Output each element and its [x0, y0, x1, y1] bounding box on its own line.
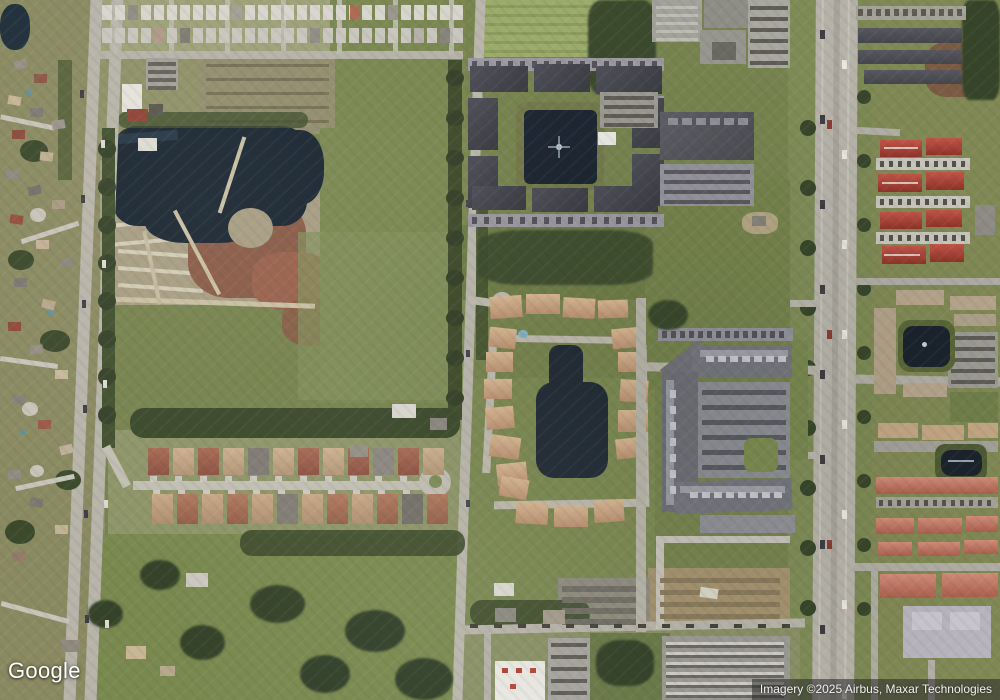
map-feature: [660, 578, 780, 583]
map-feature: [961, 161, 965, 167]
car: [820, 455, 825, 464]
townhouse: [554, 505, 588, 527]
apartment-building: [534, 64, 590, 92]
salmon-building: [878, 542, 912, 556]
trailer-row: [427, 28, 437, 43]
house: [126, 646, 146, 659]
trailer-row: [453, 28, 463, 43]
house-row: [273, 448, 294, 475]
map-feature: [429, 475, 442, 488]
map-feature: [350, 476, 357, 482]
map-feature: [614, 624, 622, 628]
map-feature: [670, 422, 676, 430]
map-feature: [800, 540, 816, 556]
clubhouse: [598, 132, 616, 145]
map-feature: [484, 217, 489, 224]
car: [820, 370, 825, 379]
map-feature: [686, 624, 694, 628]
house: [392, 404, 416, 418]
map-feature: [544, 217, 549, 224]
house: [543, 610, 565, 624]
map-feature: [446, 350, 464, 366]
map-feature: [656, 6, 698, 9]
house-row: [252, 494, 273, 524]
map-feature: [98, 330, 116, 348]
red-roof-building: [930, 244, 964, 262]
map-feature: [770, 331, 775, 338]
house: [8, 322, 21, 331]
map-feature: [857, 154, 871, 168]
house: [30, 344, 44, 354]
map-feature: [551, 691, 587, 695]
map-feature: [943, 161, 947, 167]
map-feature: [470, 624, 478, 628]
map-feature: [889, 235, 893, 241]
trailer-row: [271, 28, 281, 43]
map-feature: [698, 331, 703, 338]
map-feature: [916, 161, 920, 167]
trailer-row: [362, 5, 372, 20]
building: [874, 308, 896, 394]
map-feature: [969, 500, 973, 506]
map-feature: [604, 217, 609, 224]
map-feature: [889, 199, 893, 205]
map-feature: [446, 270, 464, 286]
trailer-row: [440, 5, 450, 20]
house-row: [298, 448, 319, 475]
map-feature: [562, 586, 636, 592]
house: [55, 525, 68, 534]
house-row: [177, 494, 198, 524]
map-feature: [648, 300, 688, 330]
map-feature: [880, 235, 884, 241]
house: [9, 214, 23, 225]
map-feature: [898, 235, 902, 241]
trailer-row: [349, 28, 359, 43]
map-feature: [446, 110, 464, 126]
trailer-row: [336, 5, 346, 20]
map-feature: [98, 254, 116, 272]
map-feature: [921, 9, 926, 16]
house: [160, 666, 175, 676]
trailer-row: [453, 5, 463, 20]
map-feature: [240, 530, 465, 556]
map-feature: [400, 476, 407, 482]
salmon-building: [876, 477, 998, 494]
house: [30, 108, 43, 117]
imagery-attribution: Imagery ©2025 Airbus, Maxar Technologies: [752, 679, 1000, 700]
map-feature: [750, 17, 788, 21]
townhouse: [485, 406, 515, 430]
map-feature: [696, 118, 706, 125]
map-feature: [472, 217, 477, 224]
house-row: [423, 448, 444, 475]
street-subdivision: [133, 481, 433, 490]
map-feature: [680, 331, 685, 338]
map-feature: [310, 28, 320, 43]
apartment-building: [472, 186, 526, 210]
map-feature: [707, 331, 712, 338]
map-feature: [30, 208, 46, 222]
map-feature: [950, 392, 998, 422]
pool: [26, 90, 32, 95]
map-feature: [5, 520, 35, 544]
map-feature: [175, 476, 182, 482]
car: [105, 620, 109, 628]
car: [820, 540, 825, 549]
map-feature: [200, 476, 207, 482]
house: [350, 445, 368, 457]
map-feature: [934, 161, 938, 167]
map-feature: [961, 199, 965, 205]
trailer-row: [323, 5, 333, 20]
red-roof-building: [926, 138, 962, 155]
map-feature: [484, 630, 491, 700]
map-feature: [750, 28, 788, 32]
trailer-row: [193, 28, 203, 43]
map-feature: [761, 331, 766, 338]
map-feature: [800, 120, 816, 136]
trailer-row: [297, 28, 307, 43]
map-feature: [957, 9, 962, 16]
map-feature: [857, 410, 871, 424]
map-feature: [758, 624, 766, 628]
map-feature: [961, 235, 965, 241]
house-row: [173, 448, 194, 475]
map-feature: [590, 624, 598, 628]
map-feature: [656, 14, 698, 17]
map-feature: [373, 448, 394, 475]
map-feature: [558, 136, 560, 158]
map-feature: [516, 668, 522, 673]
map-feature: [670, 390, 676, 398]
map-feature: [750, 492, 758, 498]
map-feature: [933, 500, 937, 506]
car: [81, 195, 85, 203]
map-feature: [734, 624, 742, 628]
map-feature: [939, 9, 944, 16]
road: [636, 298, 646, 632]
building: [149, 104, 163, 116]
map-feature: [656, 22, 698, 25]
map-feature: [916, 235, 920, 241]
car: [101, 140, 105, 148]
map-feature: [950, 612, 980, 630]
trailer-row: [128, 28, 138, 43]
building: [954, 314, 996, 326]
map-feature: [494, 624, 502, 628]
map-feature: [502, 668, 508, 673]
apartment-building: [864, 70, 962, 84]
car: [102, 260, 106, 268]
apartment-building: [858, 50, 962, 64]
house-row: [198, 448, 219, 475]
car: [85, 615, 89, 623]
map-feature: [148, 62, 176, 66]
map-feature: [710, 624, 718, 628]
house: [34, 74, 47, 83]
building: [138, 138, 157, 151]
car: [820, 115, 825, 124]
map-feature: [40, 330, 70, 352]
map-feature: [628, 217, 633, 224]
house: [6, 170, 19, 179]
satellite-map[interactable]: [0, 0, 1000, 700]
map-feature: [743, 331, 748, 338]
apartment-building: [468, 98, 498, 150]
map-feature: [960, 500, 964, 506]
map-feature: [206, 92, 329, 95]
car: [842, 330, 847, 339]
map-feature: [725, 331, 730, 338]
map-feature: [766, 356, 774, 362]
map-feature: [446, 70, 464, 86]
map-feature: [664, 180, 750, 184]
map-feature: [551, 679, 587, 683]
map-feature: [604, 114, 654, 118]
map-feature: [140, 560, 180, 590]
map-feature: [750, 50, 788, 54]
pool: [518, 330, 528, 338]
map-feature: [907, 161, 911, 167]
plaza-lawn: [790, 340, 808, 460]
map-feature: [446, 150, 464, 166]
map-feature: [551, 655, 587, 659]
townhouse: [489, 434, 522, 460]
map-feature: [750, 61, 788, 65]
trailer-row: [167, 5, 177, 20]
house: [62, 640, 80, 652]
map-feature: [180, 28, 190, 43]
townhouse: [593, 499, 624, 523]
map-feature: [562, 597, 636, 603]
trailer-row: [219, 5, 229, 20]
google-logo[interactable]: Google: [8, 658, 81, 684]
house-row: [377, 494, 398, 524]
map-feature: [668, 118, 678, 125]
map-feature: [670, 454, 676, 462]
map-feature: [446, 390, 464, 406]
map-feature: [206, 106, 329, 109]
trailer-row: [414, 5, 424, 20]
townhouse: [515, 501, 548, 525]
map-feature: [272, 130, 324, 205]
map-feature: [414, 28, 424, 43]
map-feature: [907, 235, 911, 241]
house-row: [148, 448, 169, 475]
house: [14, 278, 27, 287]
map-feature: [857, 538, 871, 552]
map-feature: [478, 230, 653, 285]
map-feature: [857, 602, 871, 616]
map-feature: [388, 5, 398, 20]
map-feature: [556, 217, 561, 224]
map-feature: [876, 9, 881, 16]
map-feature: [702, 420, 786, 425]
map-feature: [754, 356, 762, 362]
map-feature: [616, 217, 621, 224]
map-feature: [666, 675, 784, 678]
trailer-row: [401, 5, 411, 20]
building: [922, 425, 964, 440]
building: [494, 583, 514, 596]
map-feature: [666, 665, 784, 668]
map-feature: [660, 614, 780, 619]
car: [820, 625, 825, 634]
map-feature: [98, 368, 116, 386]
map-feature: [951, 336, 995, 340]
map-feature: [298, 232, 468, 400]
road: [856, 278, 1000, 285]
map-feature: [706, 356, 714, 362]
map-feature: [734, 331, 739, 338]
map-feature: [580, 217, 585, 224]
map-feature: [660, 590, 780, 595]
map-feature: [800, 600, 816, 616]
house-row: [323, 448, 344, 475]
map-feature: [446, 310, 464, 326]
house: [52, 200, 65, 209]
map-feature: [250, 476, 257, 482]
map-feature: [8, 250, 34, 270]
map-feature: [508, 217, 513, 224]
trailer-row: [323, 28, 333, 43]
map-feature: [782, 624, 790, 628]
map-feature: [682, 118, 692, 125]
map-feature: [530, 668, 536, 673]
house-row: [202, 494, 223, 524]
school-building: [495, 661, 545, 700]
townhouse: [562, 297, 595, 319]
map-feature: [716, 331, 721, 338]
map-feature: [724, 118, 734, 125]
car: [842, 240, 847, 249]
car: [842, 510, 847, 519]
map-feature: [718, 356, 726, 362]
trailer-row: [193, 5, 203, 20]
map-feature: [148, 86, 176, 90]
map-feature: [880, 199, 884, 205]
map-feature: [395, 658, 453, 700]
map-feature: [714, 492, 722, 498]
car: [103, 380, 107, 388]
trailer-row: [245, 5, 255, 20]
map-feature: [897, 500, 901, 506]
map-feature: [738, 492, 746, 498]
map-feature: [915, 500, 919, 506]
map-feature: [446, 230, 464, 246]
trailer-row: [102, 5, 112, 20]
map-feature: [228, 208, 273, 248]
trailer-row: [141, 28, 151, 43]
trailer-row: [206, 28, 216, 43]
map-feature: [551, 643, 587, 647]
townhouse: [598, 299, 629, 318]
apartment-building: [532, 188, 588, 212]
map-feature: [666, 655, 784, 658]
map-feature: [670, 470, 676, 478]
car: [842, 150, 847, 159]
map-feature: [898, 199, 902, 205]
house: [430, 418, 447, 430]
map-feature: [987, 500, 991, 506]
house: [36, 240, 49, 249]
map-feature: [942, 500, 946, 506]
map-feature: [952, 161, 956, 167]
map-feature: [744, 438, 778, 472]
map-feature: [943, 199, 947, 205]
map-feature: [148, 78, 176, 82]
map-feature: [925, 161, 929, 167]
apartment-building: [858, 28, 962, 43]
map-feature: [232, 5, 242, 20]
salmon-building: [964, 540, 998, 554]
map-feature: [596, 640, 654, 686]
map-feature: [325, 476, 332, 482]
townhouse: [484, 379, 512, 399]
map-feature: [542, 624, 550, 628]
map-feature: [206, 78, 329, 81]
house: [40, 151, 54, 161]
map-feature: [702, 405, 786, 410]
car: [820, 285, 825, 294]
map-feature: [660, 602, 780, 607]
map-feature: [951, 358, 995, 362]
map-feature: [750, 39, 788, 43]
trailer-row: [232, 28, 242, 43]
trailer-row: [297, 5, 307, 20]
car: [104, 500, 108, 508]
map-feature: [604, 123, 654, 127]
map-feature: [907, 199, 911, 205]
pool: [20, 430, 26, 435]
map-feature: [934, 235, 938, 241]
map-feature: [726, 492, 734, 498]
map-feature: [510, 684, 516, 689]
map-feature: [779, 331, 784, 338]
map-feature: [248, 448, 269, 475]
map-feature: [638, 624, 646, 628]
map-feature: [656, 38, 698, 41]
map-feature: [925, 235, 929, 241]
map-feature: [702, 390, 786, 395]
map-feature: [948, 9, 953, 16]
townhouse: [486, 352, 513, 372]
map-feature: [275, 476, 282, 482]
map-feature: [250, 585, 305, 623]
map-feature: [800, 180, 816, 196]
map-feature: [277, 494, 298, 524]
map-feature: [943, 235, 947, 241]
house: [51, 119, 65, 130]
apartment-building: [596, 66, 662, 94]
salmon-building: [918, 542, 960, 556]
map-feature: [884, 254, 920, 256]
map-feature: [604, 96, 654, 100]
map-feature: [962, 0, 1000, 100]
map-viewport: Google Imagery ©2025 Airbus, Maxar Techn…: [0, 0, 1000, 700]
trailer-row: [258, 5, 268, 20]
trailer-row: [362, 28, 372, 43]
map-feature: [912, 612, 942, 630]
map-feature: [592, 217, 597, 224]
map-feature: [934, 199, 938, 205]
map-feature: [742, 356, 750, 362]
car: [820, 30, 825, 39]
trailer-row: [258, 28, 268, 43]
map-feature: [857, 346, 871, 360]
map-feature: [800, 240, 816, 256]
